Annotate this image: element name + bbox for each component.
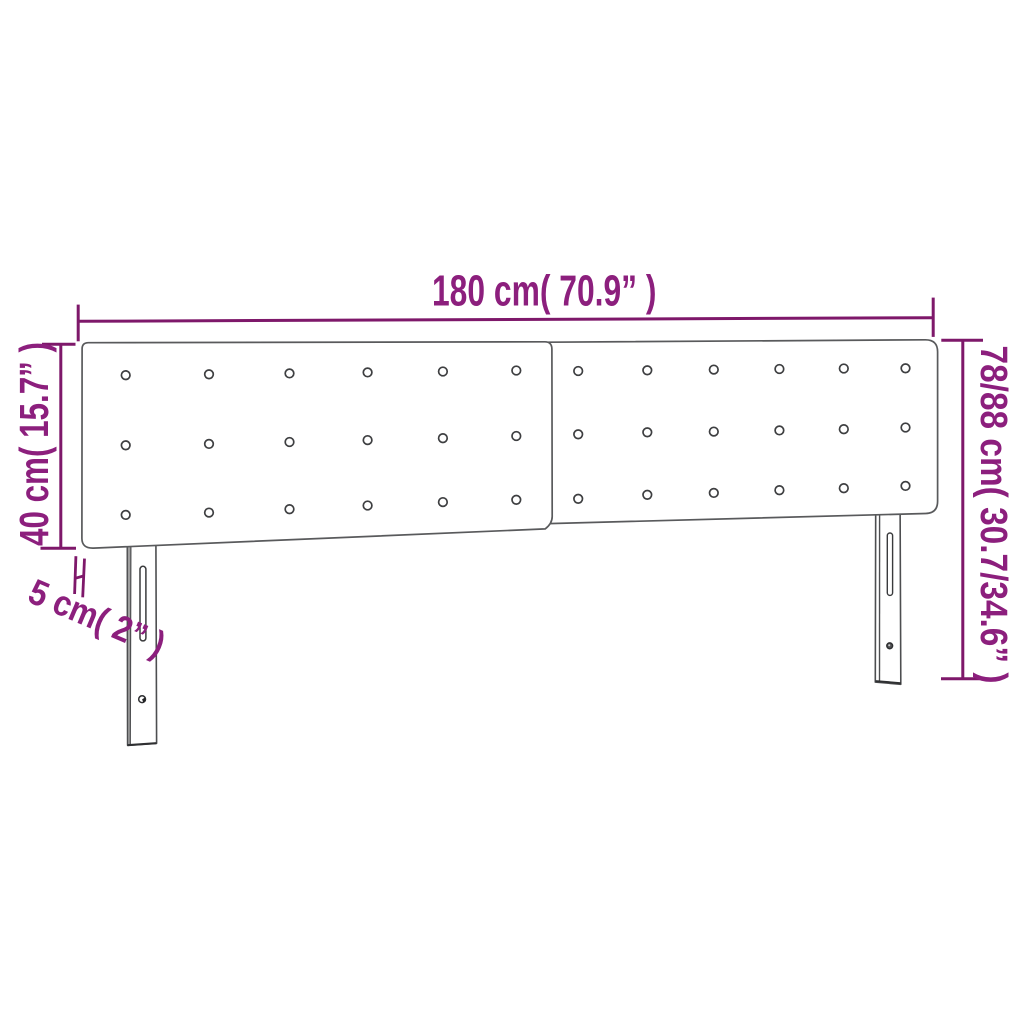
svg-text:78/88 cm( 30.7/34.6” ): 78/88 cm( 30.7/34.6” ): [972, 346, 1014, 684]
svg-text:40 cm( 15.7” ): 40 cm( 15.7” ): [11, 342, 57, 546]
svg-text:180 cm( 70.9” ): 180 cm( 70.9” ): [432, 267, 657, 316]
